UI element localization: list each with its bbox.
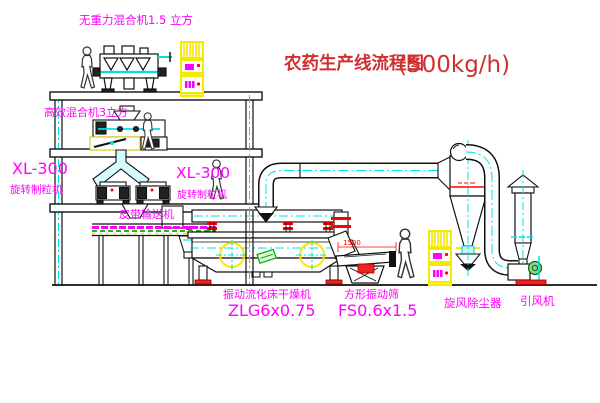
control-cabinet-2 [429,231,451,285]
label-dryer-model: ZLG6x0.75 [228,301,316,320]
label-fan: 引风机 [520,294,555,308]
person-figure-4 [398,229,414,277]
granulator-right [136,182,170,204]
label-cyclone: 旋风除尘器 [444,296,502,310]
control-cabinet-1 [181,42,203,96]
label-granulator-left-model: XL-300 [12,159,68,178]
label-granulator-mid-model: XL-300 [176,164,230,182]
floor-slab-1 [50,92,262,100]
label-sieve-model: FS0.6x1.5 [338,301,417,320]
label-granulator-mid-name: 旋转制粒机 [177,188,227,201]
label-sieve-name: 方形振动筛 [344,287,399,301]
label-dryer-name: 振动流化床干燥机 [223,287,311,301]
cad-flow-diagram: 无重力混合机1.5 立方 农药生产线流程图 (500kg/h) 高效混合机3立方… [0,0,600,403]
person-figure-1 [81,47,95,88]
granulator-left [96,182,130,204]
page-title-capacity: (500kg/h) [398,52,510,78]
gravity-mixer [93,46,172,92]
diagram-canvas: 无重力混合机1.5 立方 农药生产线流程图 (500kg/h) 高效混合机3立方… [0,0,600,403]
label-top-mixer: 无重力混合机1.5 立方 [79,13,193,27]
label-granulator-left-name: 旋转制粒机 [10,183,63,196]
label-belt-conveyor: 皮带输送机 [119,207,174,221]
label-sieve-dim: 1500 [343,239,361,247]
label-mixer2: 高效混合机3立方 [44,105,128,119]
